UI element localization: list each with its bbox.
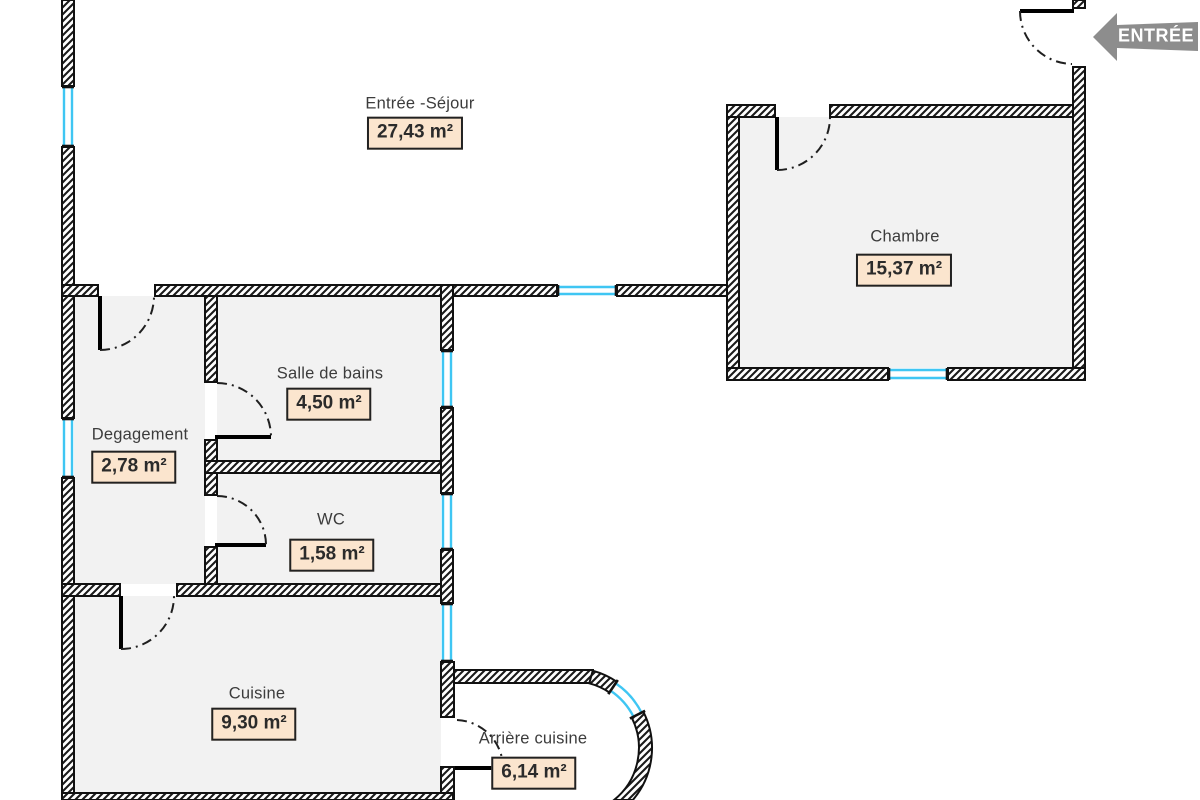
room-label-chambre: Chambre	[870, 228, 939, 247]
wall-chambre-left	[727, 117, 739, 368]
wall-deg-wc	[205, 547, 217, 584]
wall-block-right-3	[441, 550, 453, 603]
window-sejour-left	[62, 86, 74, 147]
wall-left-upper	[62, 0, 74, 86]
wall-mid-seg1	[62, 285, 98, 296]
window-degagement-left	[62, 418, 74, 478]
window-wc-right	[441, 493, 453, 550]
area-badge-cuisine: 9,30 m²	[211, 708, 296, 741]
wall-right-top-stub	[1073, 0, 1085, 8]
area-badge-chambre: 15,37 m²	[856, 254, 952, 287]
wall-deg-sdb-upper	[205, 296, 217, 382]
room-label-salle-de-bains: Salle de bains	[277, 365, 383, 384]
wall-chambre-top-right	[830, 105, 1073, 117]
wall-right-main	[1073, 67, 1085, 380]
wall-cuisine-arriere-upper	[441, 662, 454, 717]
wall-bottom	[62, 793, 453, 800]
wall-cuisine-top-right	[177, 584, 453, 596]
door-entrance	[1020, 11, 1074, 64]
window-chambre-bottom	[888, 368, 948, 380]
room-floors	[74, 117, 1073, 793]
floorplan: Entrée -Séjour 27,43 m² Chambre 15,37 m²…	[0, 0, 1200, 800]
room-label-cuisine: Cuisine	[229, 685, 285, 704]
wall-chambre-bottom-right	[948, 368, 1085, 380]
wall-chambre-bottom-left	[727, 368, 888, 380]
room-label-wc: WC	[317, 511, 345, 530]
area-badge-wc: 1,58 m²	[289, 539, 374, 572]
window-cuisine-right	[441, 603, 453, 662]
wall-chambre-top-left	[727, 105, 775, 117]
window-arriere-cuisine-curve	[608, 680, 645, 719]
wall-left-lower	[62, 478, 74, 800]
area-badge-degagement: 2,78 m²	[91, 451, 176, 484]
wall-mid-seg3	[617, 285, 727, 296]
room-label-degagement: Degagement	[92, 426, 188, 445]
wall-left-middle	[62, 147, 74, 418]
area-badge-entree-sejour: 27,43 m²	[367, 117, 463, 150]
wall-sdb-wc	[205, 461, 453, 473]
room-label-arriere-cuisine: Arrière cuisine	[479, 730, 587, 749]
area-badge-arriere-cuisine: 6,14 m²	[491, 757, 576, 790]
floorplan-drawing	[0, 0, 1200, 800]
wall-arriere-top	[454, 670, 593, 683]
room-label-entree-sejour: Entrée -Séjour	[365, 95, 474, 114]
area-badge-salle-de-bains: 4,50 m²	[286, 388, 371, 421]
wall-block-right-2	[441, 408, 453, 493]
wall-arriere-curve-lower	[614, 712, 652, 800]
window-salle-de-bains-right	[441, 350, 453, 408]
wall-mid-seg2	[155, 285, 557, 296]
wall-cuisine-top-left	[62, 584, 120, 596]
wall-block-right-1	[441, 285, 453, 350]
window-mid-wall	[557, 285, 617, 296]
entry-arrow-label: ENTRÉE	[1118, 26, 1194, 47]
